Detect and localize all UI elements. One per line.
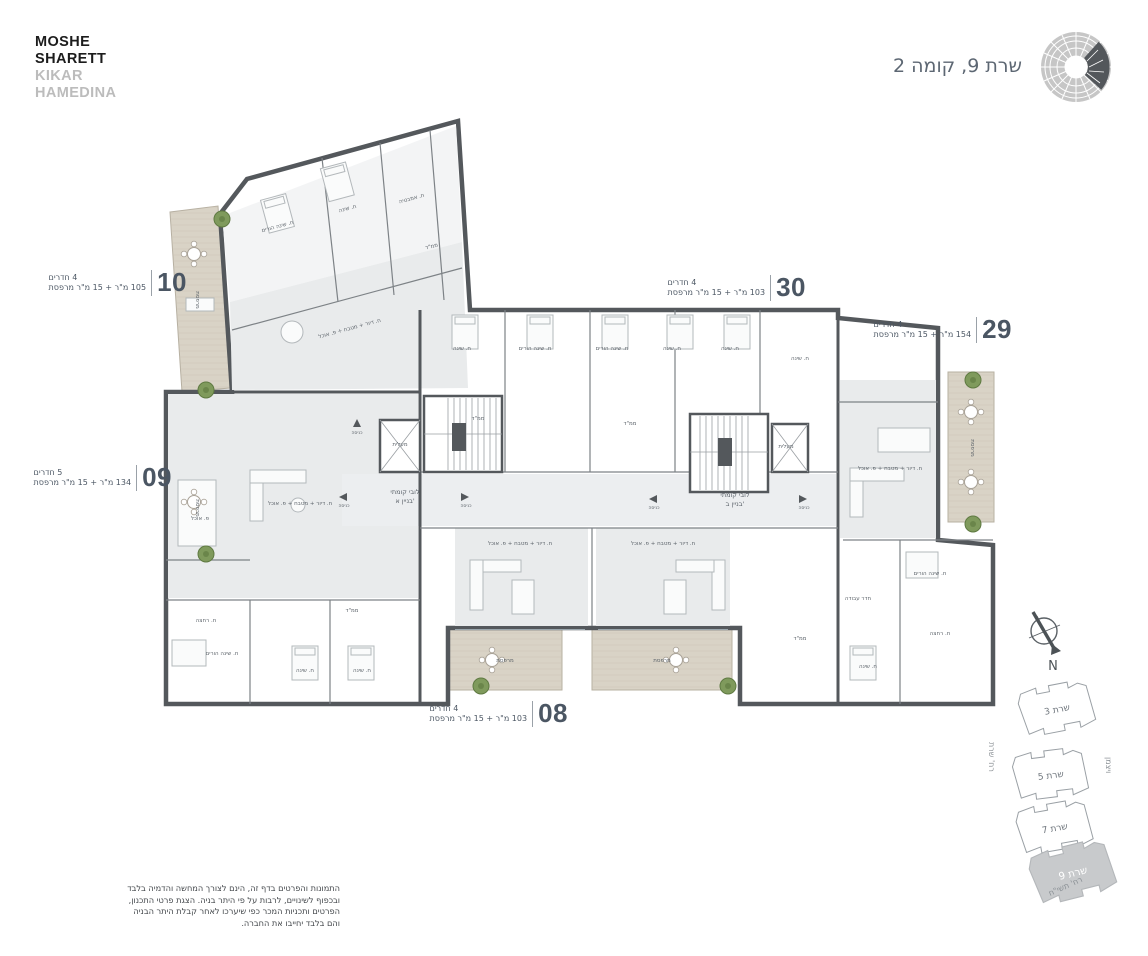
room-label: ח. רחצה [930,631,951,637]
unit-08-details: 4 חדרים 103 מ"ר + 15 מ"ר מרפסת [430,704,528,724]
room-label: ח. שינה [296,668,314,674]
room-label: לובי קומתי [390,488,420,496]
room-label: מרפסת [496,658,514,664]
legal-disclaimer: התמונות והפרטים בדף זה, הינם לצורך המחשה… [30,883,340,929]
room-label: ח. שינה הורים [206,651,239,657]
brand-logo: MOSHE SHARETT KIKAR HAMEDINA [35,34,116,102]
room-label: ח. שינה הורים [596,346,629,352]
disclaimer-line: והם בלבד יחייבו את החברה. [30,918,340,930]
unit-30-area: 103 מ"ר + 15 מ"ר מרפסת [668,288,766,298]
room-label: מרפסת [194,499,200,517]
keymap-building-5: שרת 5 [1011,746,1089,802]
unit-09-number: 09 [142,462,172,493]
street-label-weizmann: ויצמן [1104,757,1113,773]
room-label: ח. דיור + מטבח + פ. אוכל [268,500,333,507]
room-label: ח. שינה [859,664,877,670]
room-label: לובי קומתי [720,491,750,499]
divider [136,465,137,491]
disclaimer-line: התמונות והפרטים בדף זה, הינם לצורך המחשה… [30,883,340,895]
disclaimer-line: ובכפוף לשינויים, לרבות על פי היתר בניה. … [30,895,340,907]
unit-08-area: 103 מ"ר + 15 מ"ר מרפסת [430,714,528,724]
room-label: ח. רחצה [196,618,217,624]
room-label: ח. שינה [353,668,371,674]
divider [532,701,533,727]
unit-29-number: 29 [982,314,1012,345]
room-label: כניסה [351,431,363,436]
north-compass-icon: N [1029,612,1061,674]
unit-29-area: 154 מ"ר + 15 מ"ר מרפסת [874,330,972,340]
room-label: מעלית [392,441,407,448]
unit-09-area: 134 מ"ר + 15 מ"ר מרפסת [34,478,132,488]
room-label: ח. דיור + מטבח + פ. אוכל [631,540,696,547]
room-label: ממ"ד [623,421,636,427]
north-label: N [1048,659,1058,674]
brand-line: KIKAR [35,68,116,85]
room-label: ח. שינה [453,346,471,352]
street-label-sharett: רח' שרת [987,742,996,772]
room-label: בניין א' [395,497,414,505]
unit-30-number: 30 [776,272,806,303]
divider [151,270,152,296]
room-label: ח. שינה [721,346,739,352]
site-keymap: שרת 3 שרת 5 שרת 7 שרת 9 רח' שרת ויצמן רח… [987,678,1118,907]
page: ח. שינה הוריםח. שינהח. אמבטיהממ"דח. דיור… [0,0,1148,956]
unit-10-details: 4 חדרים 105 מ"ר + 15 מ"ר מרפסת [49,273,147,293]
unit-08-rooms: 4 חדרים [430,704,528,714]
room-label: כניסה [338,504,350,509]
room-label: מרפסת [969,439,975,457]
unit-09-details: 5 חדרים 134 מ"ר + 15 מ"ר מרפסת [34,468,132,488]
unit-label-09: 5 חדרים 134 מ"ר + 15 מ"ר מרפסת 09 [34,462,172,493]
room-label: ממ"ד [793,636,806,642]
room-label: ח. שינה הורים [914,571,947,577]
room-label: מרפסת [653,658,671,664]
brand-line: HAMEDINA [35,85,116,102]
floorplan-canvas: ח. שינה הוריםח. שינהח. אמבטיהממ"דח. דיור… [0,0,1148,956]
brand-line: SHARETT [35,51,116,68]
room-label: ממ"ד [471,416,484,422]
room-label: ח. דיור + מטבח + פ. אוכל [488,540,553,547]
divider [770,275,771,301]
room-label: ממ"ד [345,608,358,614]
room-label: ח. דיור + מטבח + פ. אוכל [858,465,923,472]
room-label: מרפסת [194,291,200,309]
unit-09-rooms: 5 חדרים [34,468,132,478]
room-label: ח. שינה [791,356,809,362]
unit-30-rooms: 4 חדרים [668,278,766,288]
keymap-building-3: שרת 3 [1016,678,1097,738]
room-label: כניסה [798,506,810,511]
page-title: שרת 9, קומה 2 [893,55,1022,77]
room-label: ח. שינה [663,346,681,352]
unit-10-number: 10 [157,267,187,298]
unit-29-details: 4 חדרים 154 מ"ר + 15 מ"ר מרפסת [874,320,972,340]
unit-label-29: 4 חדרים 154 מ"ר + 15 מ"ר מרפסת 29 [874,314,1012,345]
unit-label-08: 4 חדרים 103 מ"ר + 15 מ"ר מרפסת 08 [430,698,568,729]
unit-label-30: 4 חדרים 103 מ"ר + 15 מ"ר מרפסת 30 [668,272,806,303]
unit-label-10: 4 חדרים 105 מ"ר + 15 מ"ר מרפסת 10 [49,267,187,298]
room-label: מעלית [778,443,793,450]
brand-line: MOSHE [35,34,116,51]
room-label: חדר עבודה [845,596,872,602]
unit-08-number: 08 [538,698,568,729]
divider [976,317,977,343]
unit-29-rooms: 4 חדרים [874,320,972,330]
room-label: כניסה [460,504,472,509]
project-logo-icon [1041,32,1111,102]
room-label: ח. שינה הורים [519,346,552,352]
unit-10-area: 105 מ"ר + 15 מ"ר מרפסת [49,283,147,293]
room-label: בניין ב' [726,500,745,508]
unit-30-details: 4 חדרים 103 מ"ר + 15 מ"ר מרפסת [668,278,766,298]
room-label: כניסה [648,506,660,511]
disclaimer-line: הפרטים ותכניות המכר כפי שיערכו לאחר קבלת… [30,906,340,918]
unit-10-rooms: 4 חדרים [49,273,147,283]
